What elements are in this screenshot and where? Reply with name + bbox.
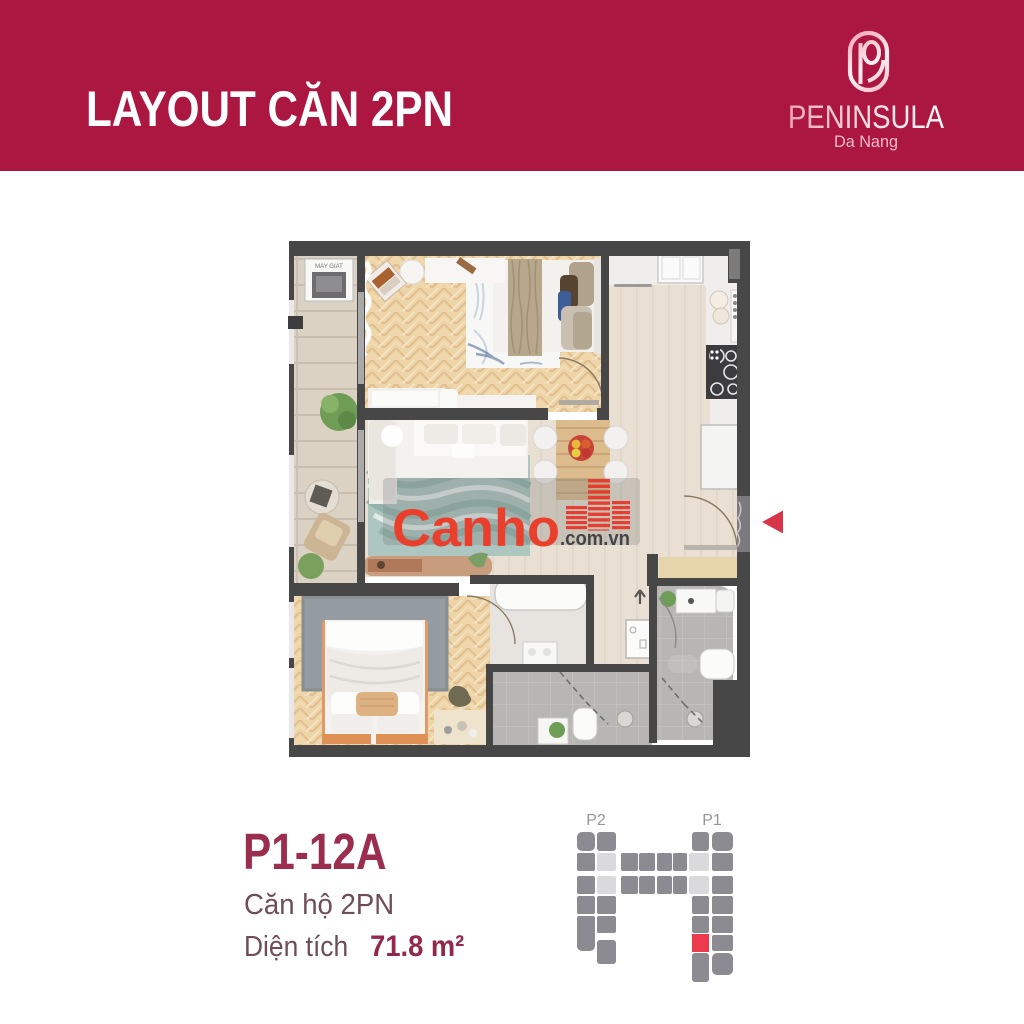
svg-text:P1: P1 — [702, 812, 722, 829]
svg-text:P2: P2 — [586, 812, 606, 829]
svg-text:Canho: Canho — [392, 499, 560, 558]
svg-text:.com.vn: .com.vn — [560, 528, 630, 550]
svg-text:MAY GIAT: MAY GIAT — [315, 264, 343, 270]
